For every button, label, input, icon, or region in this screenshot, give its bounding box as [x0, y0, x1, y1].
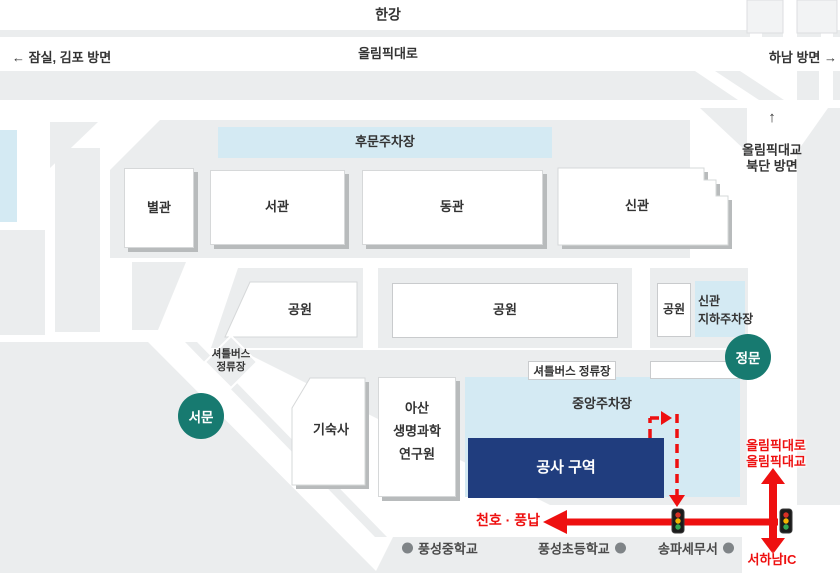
park-east-label: 공원 — [663, 302, 685, 316]
research-line1: 아산 — [393, 397, 441, 420]
olympic-bridge-direction: 올림픽대교 북단 방면 — [742, 142, 802, 173]
new-wing-label: 신관 — [625, 198, 649, 214]
shuttle-diamond-line2: 정류장 — [212, 361, 251, 374]
underground-parking-line2: 지하주차장 — [698, 310, 753, 328]
bridge-direction-line1: 올림픽대교 — [742, 142, 802, 158]
tax-office-landmark: 송파세무서 — [658, 539, 734, 558]
west-gate-label: 서문 — [189, 406, 214, 426]
bridge-ramps — [747, 0, 837, 33]
olympic-daero-label: 올림픽대로 — [358, 46, 418, 62]
dormitory-label: 기숙사 — [313, 422, 349, 438]
campus-map: 셔틀버스 정류장 한강 ← 잠실, 김포 방면 올림픽대로 하남 방면 → ↑ … — [0, 0, 840, 573]
seohanam-ic-label: 서하남IC — [748, 552, 797, 568]
shuttle-diamond-line1: 셔틀버스 — [212, 348, 251, 361]
olympic-daero-bridge-label: 올림픽대로 올림픽대교 — [746, 438, 806, 470]
riverside-parking-strip — [0, 130, 17, 222]
rear-parking-label: 후문주차장 — [355, 134, 415, 150]
research-line2: 생명과학 — [393, 420, 441, 443]
construction-zone-label: 공사 구역 — [536, 459, 595, 477]
east-wing-label: 동관 — [440, 199, 464, 215]
shuttle-stop-box-label: 셔틀버스 정류장 — [533, 363, 610, 379]
central-parking-label: 중앙주차장 — [572, 396, 632, 412]
cheonho-pungnap-label: 천호 · 풍납 — [476, 510, 540, 530]
annex-label: 별관 — [147, 200, 171, 216]
research-institute-label: 아산 생명과학 연구원 — [393, 397, 441, 466]
han-river-label: 한강 — [375, 7, 401, 24]
landmark-dot-icon — [402, 543, 413, 554]
middle-school-landmark: 풍성중학교 — [402, 539, 478, 558]
road-median-strips — [0, 30, 840, 100]
hanam-direction: 하남 방면 → — [769, 47, 837, 66]
middle-school-label: 풍성중학교 — [418, 539, 478, 558]
tax-office-label: 송파세무서 — [658, 539, 718, 558]
jamsil-gimpo-direction: ← 잠실, 김포 방면 — [12, 47, 111, 66]
park-center-label: 공원 — [493, 302, 517, 318]
underground-parking-line1: 신관 — [698, 292, 753, 310]
park-west-label: 공원 — [288, 302, 312, 318]
olympic-route-line2: 올림픽대교 — [746, 454, 806, 470]
underground-parking-label: 신관 지하주차장 — [698, 292, 753, 328]
olympic-route-line1: 올림픽대로 — [746, 438, 806, 454]
shuttle-stop-diamond-label: 셔틀버스 정류장 — [212, 348, 251, 374]
west-gate-badge: 서문 — [178, 393, 224, 439]
shuttle-stop-box: 셔틀버스 정류장 — [528, 361, 616, 380]
west-wing-label: 서관 — [265, 199, 289, 215]
main-gate-label: 정문 — [736, 347, 761, 367]
main-gate-badge: 정문 — [725, 334, 771, 380]
landmark-dot-icon — [615, 543, 626, 554]
research-line3: 연구원 — [393, 443, 441, 466]
elementary-school-landmark: 풍성초등학교 — [538, 539, 626, 558]
landmark-dot-icon — [723, 543, 734, 554]
elementary-school-label: 풍성초등학교 — [538, 539, 610, 558]
bridge-up-arrow-icon: ↑ — [768, 109, 776, 127]
bridge-direction-line2: 북단 방면 — [742, 158, 802, 174]
